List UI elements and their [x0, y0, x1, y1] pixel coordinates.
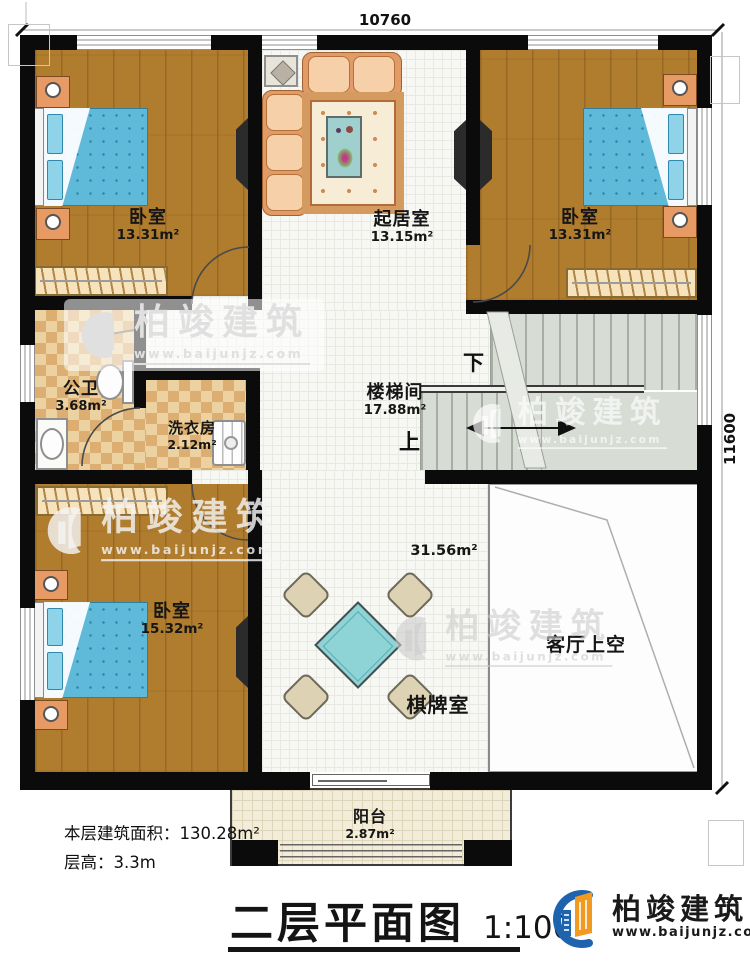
room-area: 13.31m²: [540, 228, 620, 244]
room-name: 公卫: [50, 379, 112, 399]
living-void-area: [488, 484, 698, 772]
window: [697, 108, 712, 205]
brand-name: 柏竣建筑: [612, 894, 750, 924]
wall-segment: [658, 35, 712, 50]
sofa-cushion: [266, 174, 304, 211]
wall-segment: [466, 35, 480, 245]
balcony-sliding-door: [312, 774, 430, 786]
sofa-cushion: [266, 94, 304, 131]
wardrobe: [566, 268, 697, 298]
wall-segment: [430, 772, 712, 790]
floor-height-value: 3.3m: [114, 853, 156, 872]
door-opening: [192, 470, 248, 484]
room-label: 卧室 15.32m²: [130, 601, 214, 638]
door-opening: [192, 296, 248, 310]
corner-table: [264, 55, 298, 87]
title-underline: [228, 947, 520, 952]
door-opening: [134, 408, 146, 470]
living-void-label: 客厅上空: [524, 630, 648, 657]
tv: [236, 616, 248, 688]
dimension-tick: [716, 782, 728, 794]
drawing-title: 二层平面图: [230, 889, 465, 951]
brand-logo: 柏竣建筑 www.baijunjz.com: [549, 884, 750, 950]
wall-segment: [20, 772, 310, 790]
stair-up-label: 上: [399, 426, 420, 456]
game-room-name: 棋牌室: [392, 689, 484, 718]
sofa-cushion: [353, 56, 395, 93]
room-label: 起居室 13.15m²: [357, 209, 447, 246]
wall-segment: [425, 470, 712, 484]
nightstand: [36, 208, 70, 240]
game-room-area: 31.56m²: [402, 543, 486, 559]
stair-down-label: 下: [463, 347, 484, 377]
nightstand: [34, 570, 68, 600]
room-name: 起居室: [357, 209, 447, 230]
lamp-icon: [672, 212, 688, 228]
room-area: 2.12m²: [158, 438, 226, 453]
nightstand: [34, 700, 68, 730]
tv: [236, 118, 248, 190]
room-name: 阳台: [338, 808, 402, 827]
room-label: 楼梯间 17.88m²: [335, 382, 455, 419]
corner-mark: [708, 820, 744, 866]
room-area: 13.31m²: [108, 228, 188, 244]
sofa-cushion: [308, 56, 350, 93]
floor-plan-page: 卧室 13.31m² 起居室 13.15m² 卧室 13.31m² 公卫 3.6…: [0, 0, 750, 965]
lamp-icon: [43, 706, 59, 722]
toilet-tank: [122, 360, 134, 404]
stair-landing: [542, 392, 697, 470]
room-label: 公卫 3.68m²: [50, 379, 112, 414]
room-name: 楼梯间: [335, 382, 455, 403]
nightstand: [663, 74, 697, 106]
window: [20, 608, 35, 700]
lamp-icon: [45, 214, 61, 230]
wall-segment: [134, 310, 146, 408]
room-area: 15.32m²: [130, 622, 214, 638]
wall-segment: [697, 205, 712, 315]
floor-area-line: 本层建筑面积：130.28m²: [64, 820, 260, 849]
tv: [454, 120, 466, 190]
wall-segment: [248, 470, 262, 772]
room-area: 2.87m²: [338, 827, 402, 842]
wall-segment: [20, 296, 192, 310]
corner-mark: [710, 56, 740, 104]
drawing-title-block: 二层平面图 1:100: [230, 889, 572, 951]
wardrobe: [34, 266, 168, 296]
top-dimension: 10760: [352, 11, 418, 29]
tv: [480, 120, 492, 190]
room-label: 阳台 2.87m²: [338, 808, 402, 842]
room-name: 卧室: [108, 207, 188, 228]
floor-area-label: 本层建筑面积：: [64, 824, 180, 843]
bed: [583, 108, 697, 206]
room-label: 卧室 13.31m²: [108, 207, 188, 244]
corner-mark: [8, 24, 50, 66]
window: [262, 35, 317, 50]
wall-segment: [466, 300, 712, 314]
room-label: 洗衣房 2.12m²: [158, 420, 226, 452]
floor-area-value: 130.28m²: [180, 824, 260, 843]
sofa-cushion: [266, 134, 304, 171]
window: [20, 345, 35, 402]
wall-segment: [146, 368, 246, 380]
sink-basin: [40, 428, 64, 460]
bed: [34, 108, 148, 206]
wall-segment: [246, 368, 260, 470]
wall-segment: [317, 35, 528, 50]
wall-segment: [20, 402, 35, 608]
floor-height-label: 层高：: [64, 853, 114, 872]
floor-height-line: 层高：3.3m: [64, 849, 260, 878]
floor-info: 本层建筑面积：130.28m² 层高：3.3m: [64, 820, 260, 878]
right-dimension: 11600: [721, 409, 739, 469]
room-area: 3.68m²: [50, 399, 112, 414]
room-name: 洗衣房: [158, 420, 226, 438]
door-opening: [466, 245, 480, 300]
wall-segment: [248, 50, 262, 310]
wardrobe: [36, 486, 168, 516]
window: [697, 315, 712, 425]
room-name: 卧室: [130, 601, 214, 622]
wall-segment: [20, 470, 192, 484]
lamp-icon: [43, 576, 59, 592]
room-label: 卧室 13.31m²: [540, 207, 620, 244]
brand-logo-icon: [549, 884, 603, 950]
coffee-table: [326, 116, 362, 178]
brand-website: www.baijunjz.com: [612, 925, 750, 940]
stair-upper-flight: [490, 314, 698, 390]
balcony-railing: [280, 844, 462, 862]
room-name: 卧室: [540, 207, 620, 228]
room-area: 13.15m²: [357, 230, 447, 246]
balcony-pillar: [464, 840, 512, 866]
lamp-icon: [672, 80, 688, 96]
nightstand: [663, 206, 697, 238]
room-area: 17.88m²: [335, 403, 455, 419]
nightstand: [36, 76, 70, 108]
wall-segment: [211, 35, 262, 50]
window: [528, 35, 658, 50]
lamp-icon: [45, 82, 61, 98]
dimension-tick: [712, 24, 724, 36]
window: [77, 35, 211, 50]
